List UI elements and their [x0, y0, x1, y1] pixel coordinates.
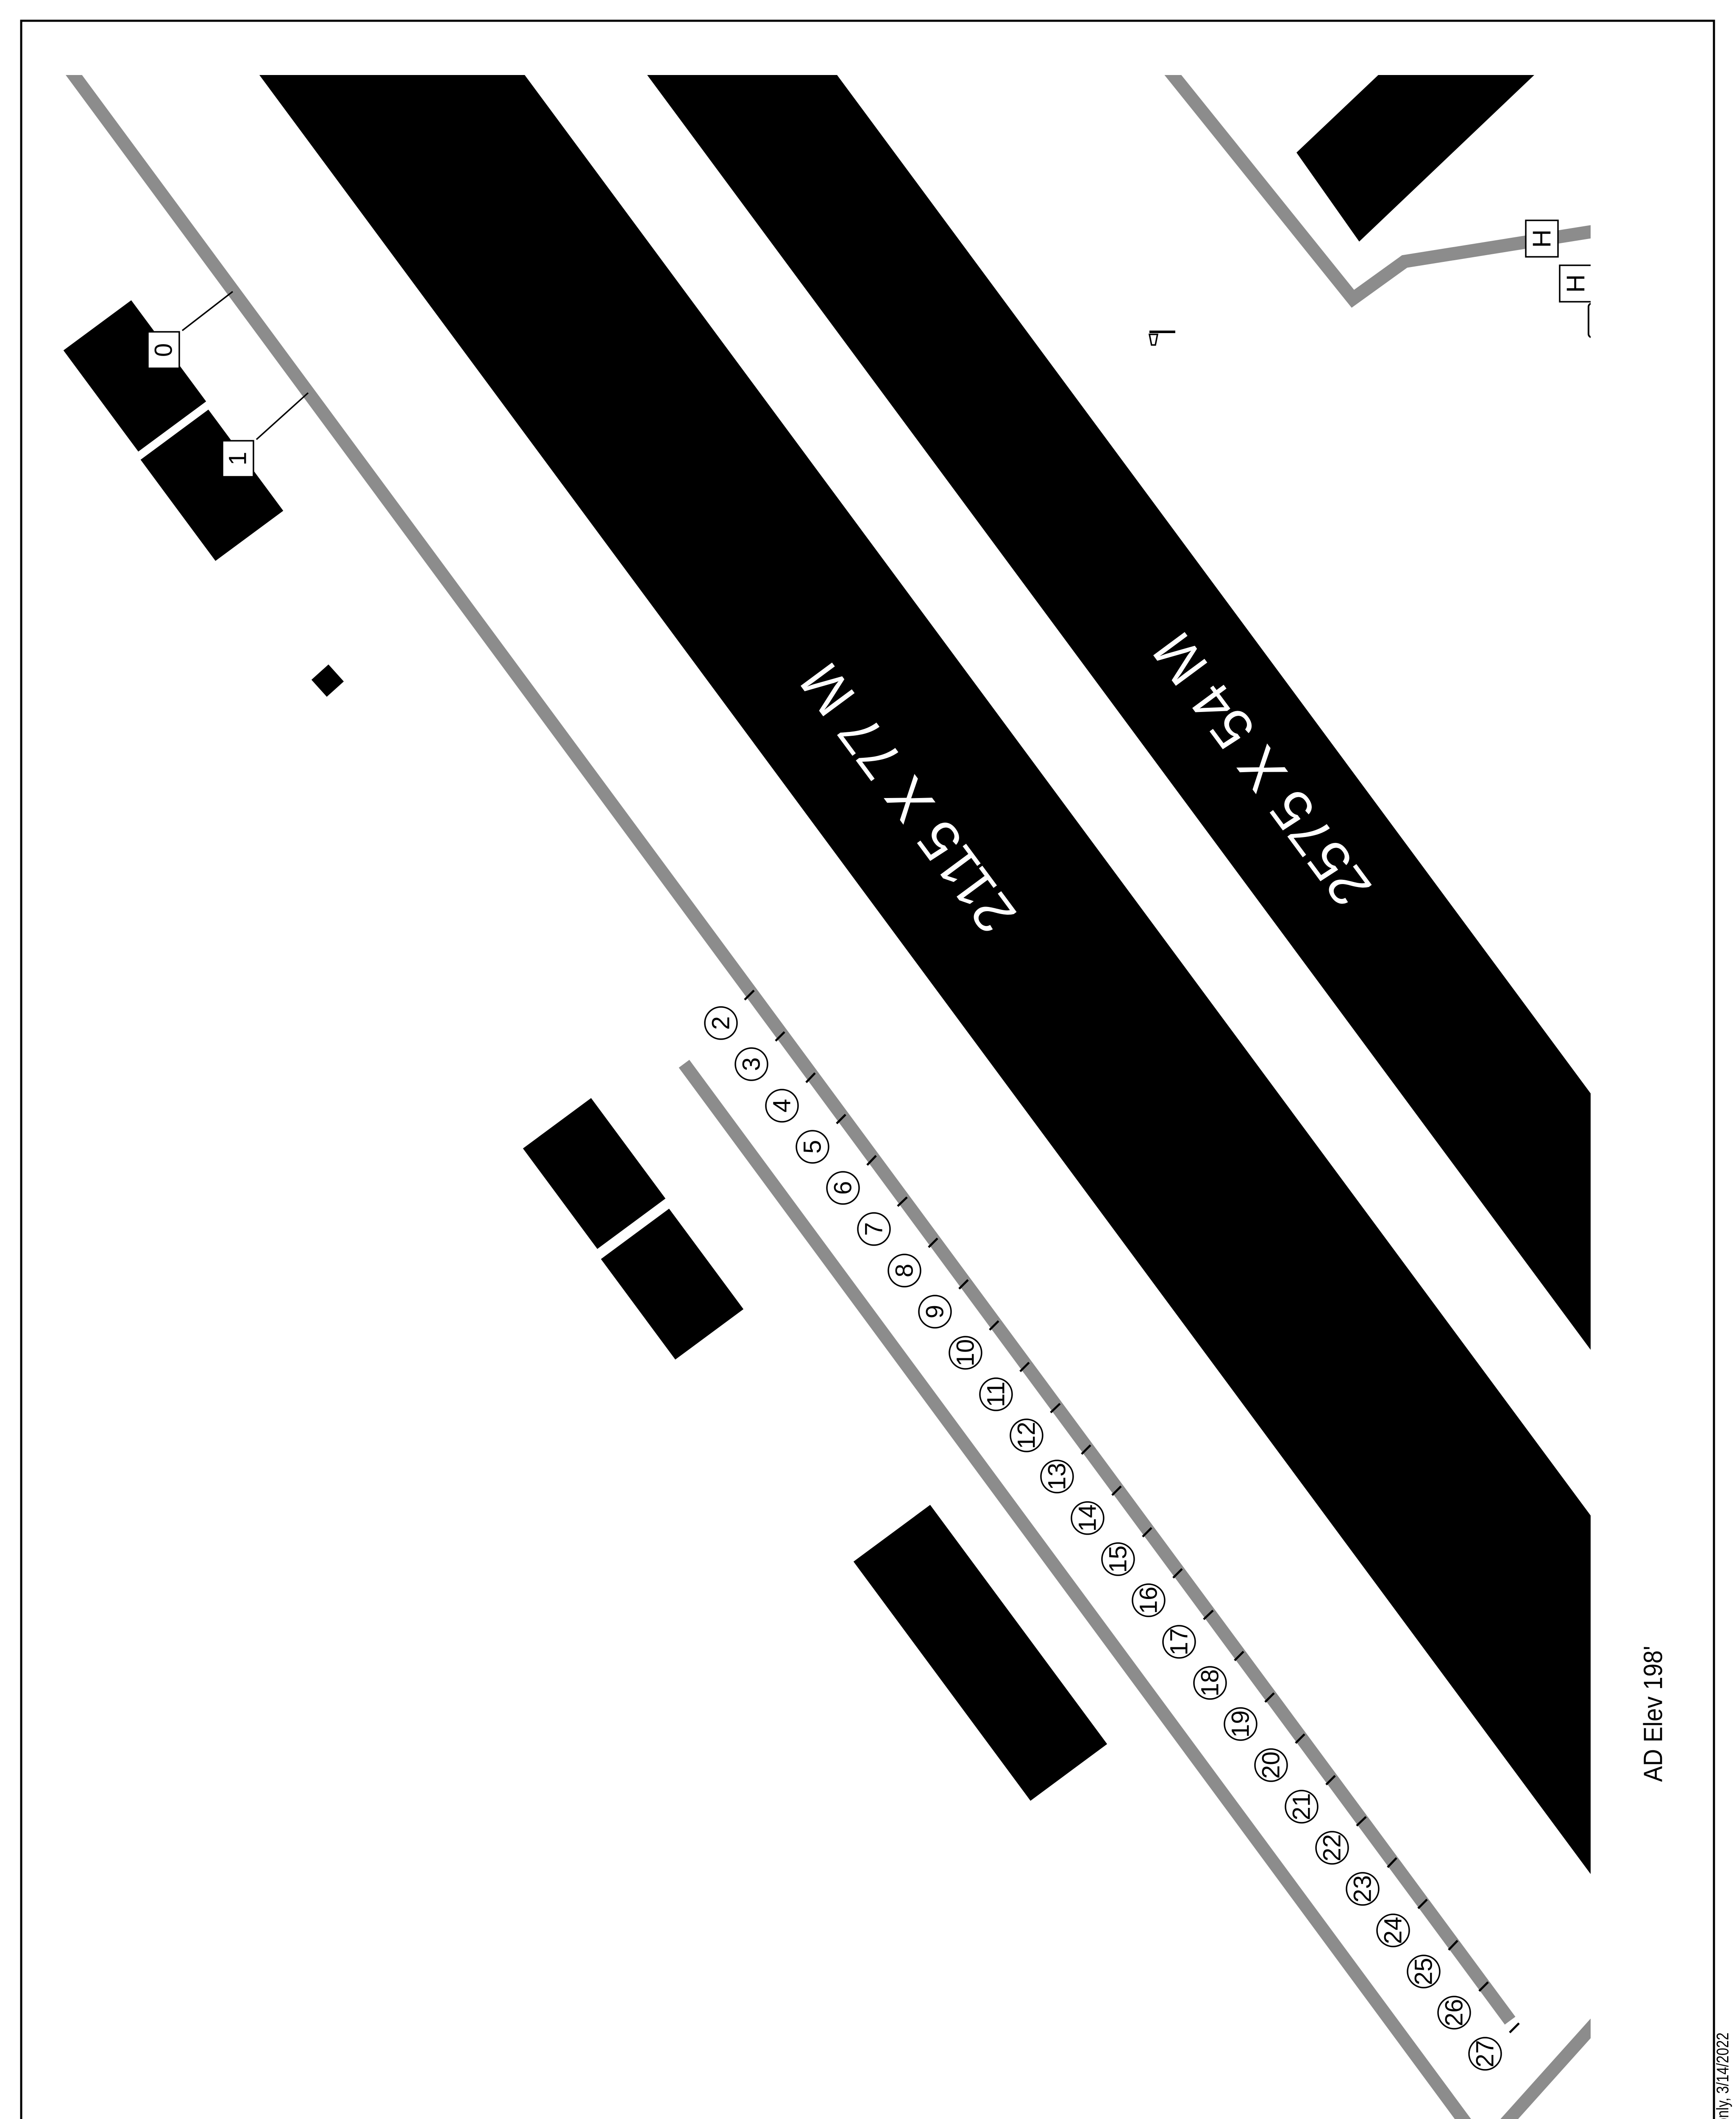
- svg-text:27: 27: [1472, 2040, 1499, 2068]
- svg-text:19: 19: [1227, 1710, 1255, 1738]
- svg-text:7: 7: [860, 1222, 888, 1236]
- svg-text:16: 16: [1135, 1587, 1163, 1614]
- svg-text:0: 0: [150, 343, 178, 357]
- svg-text:2: 2: [707, 1016, 735, 1030]
- svg-text:14: 14: [1074, 1504, 1102, 1532]
- svg-text:8: 8: [891, 1264, 918, 1277]
- svg-text:H: H: [1562, 274, 1590, 292]
- svg-text:H: H: [1528, 229, 1556, 247]
- svg-text:21: 21: [1288, 1793, 1316, 1821]
- svg-text:18: 18: [1196, 1669, 1224, 1697]
- svg-text:20: 20: [1257, 1752, 1285, 1779]
- svg-text:13: 13: [1043, 1463, 1071, 1491]
- svg-text:10: 10: [952, 1339, 979, 1367]
- svg-text:For BMS use only, 3/14/2022: For BMS use only, 3/14/2022: [1714, 2033, 1732, 2119]
- svg-text:15: 15: [1104, 1546, 1132, 1573]
- svg-text:25: 25: [1410, 1958, 1438, 1986]
- svg-text:5: 5: [799, 1140, 826, 1154]
- svg-text:26: 26: [1441, 1999, 1468, 2027]
- svg-text:17: 17: [1166, 1628, 1193, 1656]
- svg-text:6: 6: [829, 1181, 857, 1195]
- svg-text:4: 4: [768, 1099, 796, 1112]
- svg-text:12: 12: [1013, 1422, 1040, 1449]
- svg-text:11: 11: [982, 1382, 1010, 1407]
- svg-text:AD Elev 198': AD Elev 198': [1639, 1646, 1668, 1782]
- svg-text:22: 22: [1319, 1834, 1346, 1862]
- svg-text:24: 24: [1380, 1917, 1407, 1944]
- svg-text:1: 1: [224, 452, 252, 465]
- svg-text:9: 9: [921, 1305, 949, 1318]
- svg-text:23: 23: [1349, 1875, 1377, 1903]
- svg-text:3: 3: [738, 1057, 765, 1071]
